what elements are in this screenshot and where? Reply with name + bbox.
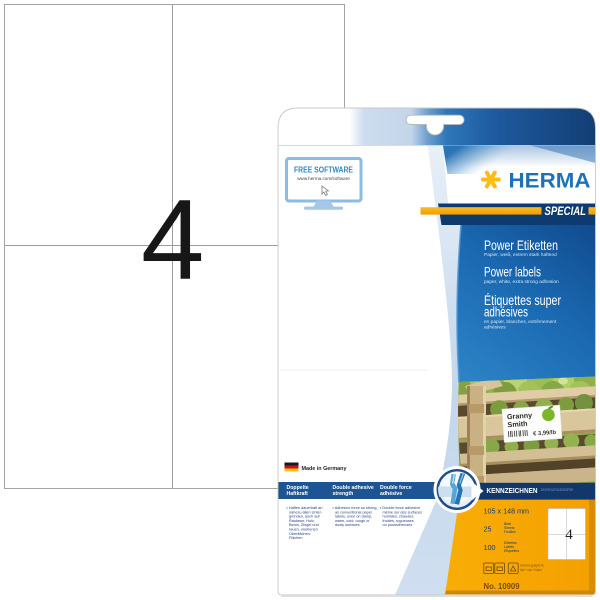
svg-text:100: 100 (484, 543, 496, 552)
svg-text:en papier, blanches, extrêmeme: en papier, blanches, extrêmement (484, 319, 557, 325)
svg-text:www.herma.com/software: www.herma.com/software (297, 176, 350, 181)
svg-text:Made in Germany: Made in Germany (302, 466, 347, 472)
svg-text:Power Etiketten: Power Etiketten (484, 237, 558, 253)
svg-text:Feuilles: Feuilles (504, 530, 516, 534)
svg-text:Doppelte: Doppelte (287, 485, 309, 491)
svg-text:dusty surfaces: dusty surfaces (335, 523, 360, 527)
svg-text:HERMA: HERMA (509, 168, 591, 192)
svg-text:ou poussiéreuses: ou poussiéreuses (383, 523, 413, 527)
svg-text:FREE SOFTWARE: FREE SOFTWARE (294, 165, 354, 174)
svg-text:25: 25 (484, 525, 492, 534)
svg-text:No. 10909: No. 10909 (484, 582, 520, 591)
svg-text:Haftkraft: Haftkraft (287, 491, 309, 497)
svg-text:KENNZEICHNEN: KENNZEICHNEN (487, 486, 538, 495)
svg-text:strength: strength (333, 491, 354, 497)
svg-text:IDENTIFICATION IDENTIFIER: IDENTIFICATION IDENTIFIER (541, 488, 574, 492)
svg-text:Étiquettes: Étiquettes (504, 548, 519, 553)
svg-text:Double adhesive: Double adhesive (333, 485, 374, 491)
svg-text:Power labels: Power labels (484, 264, 541, 280)
svg-text:paper, white, extra strong adh: paper, white, extra strong adhesion (484, 279, 559, 285)
svg-text:4: 4 (565, 527, 573, 543)
svg-text:Flächen: Flächen (289, 536, 303, 540)
svg-text:Inkjet + Laser + Kopierer: Inkjet + Laser + Kopierer (520, 568, 543, 572)
svg-text:105 x 148 mm: 105 x 148 mm (484, 507, 530, 516)
svg-text:Papier, weiß, extrem stark haf: Papier, weiß, extrem stark haftend (484, 252, 557, 258)
svg-text:Double force: Double force (380, 485, 412, 491)
svg-text:Smith: Smith (507, 419, 528, 429)
svg-text:adhésives: adhésives (484, 325, 506, 331)
svg-text:Universal geeignet für: Universal geeignet für (520, 564, 545, 568)
svg-text:adhésive: adhésive (380, 491, 402, 497)
svg-text:adhésives: adhésives (484, 304, 528, 320)
svg-text:SPECIAL: SPECIAL (545, 204, 587, 218)
